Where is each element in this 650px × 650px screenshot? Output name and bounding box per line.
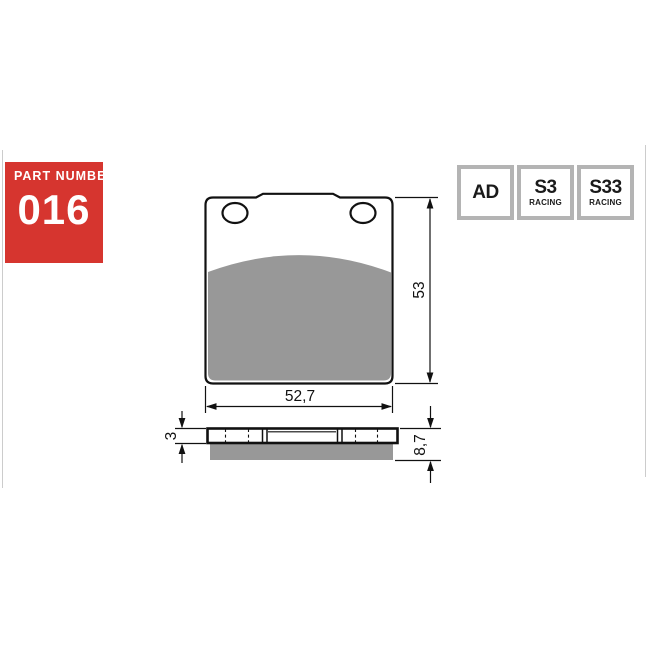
product-diagram-canvas: PART NUMBER 016 AD S3 RACING S33 RACING bbox=[0, 0, 650, 650]
height-dimension-label: 53 bbox=[411, 281, 428, 298]
backplate-side bbox=[208, 429, 398, 444]
total-thickness-label: 8,7 bbox=[412, 434, 429, 456]
friction-material-front bbox=[208, 255, 391, 380]
mounting-hole-right bbox=[351, 203, 376, 223]
width-dimension-label: 52,7 bbox=[285, 388, 315, 405]
brake-pad-side-view bbox=[208, 429, 398, 461]
technical-drawing: 53 52,7 bbox=[0, 0, 650, 650]
friction-material-side bbox=[210, 443, 393, 460]
brake-pad-front-view bbox=[206, 194, 393, 384]
backplate-thickness-label: 3 bbox=[163, 432, 180, 441]
mounting-hole-left bbox=[223, 203, 248, 223]
